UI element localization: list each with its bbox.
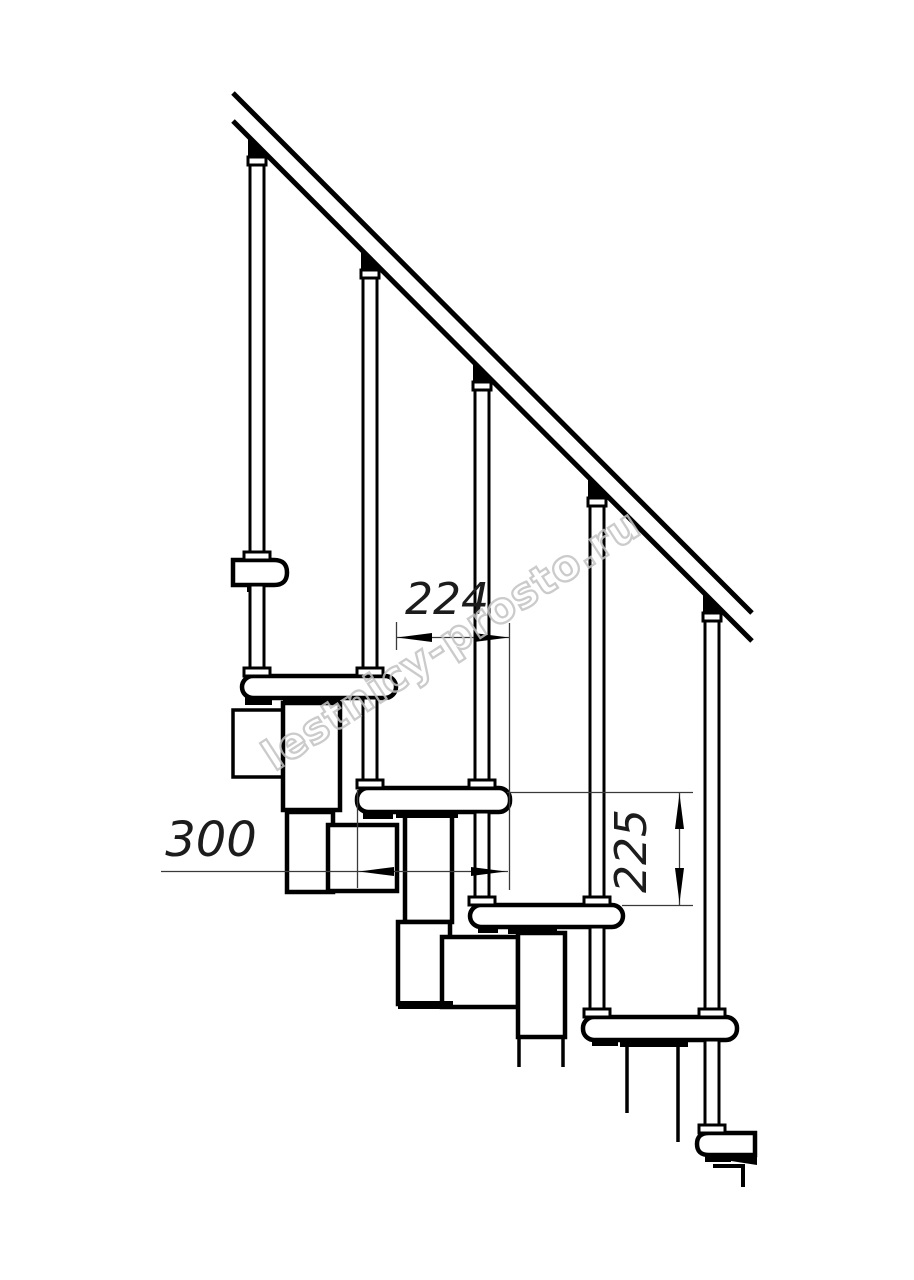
baluster-shaft — [705, 1040, 719, 1125]
tread-1 — [233, 560, 287, 585]
support-box-foot — [398, 1001, 453, 1009]
baluster-5 — [699, 594, 725, 1133]
dimension-label: 225 — [606, 809, 657, 893]
baluster-collar — [584, 897, 610, 905]
baluster-collar — [469, 897, 495, 905]
baluster-collar — [584, 1009, 610, 1017]
baluster-collar — [244, 552, 270, 560]
tread-5 — [583, 1017, 737, 1040]
support-box — [328, 825, 397, 891]
baluster-collar — [244, 668, 270, 676]
baluster-shaft — [250, 165, 264, 552]
dimension-arrow — [675, 794, 684, 829]
staircase-drawing: 224 300 225 lestnicy-prosto.ru — [0, 0, 914, 1280]
dimension-label: 300 — [165, 812, 257, 868]
dimension-arrow — [675, 868, 684, 903]
baluster-shaft — [590, 927, 604, 1009]
baluster-shaft — [475, 812, 489, 897]
baluster-collar — [469, 780, 495, 788]
handrail-bottom-edge — [233, 121, 752, 641]
baluster-collar — [357, 780, 383, 788]
support-box — [442, 937, 518, 1007]
handrail-top-edge — [233, 93, 752, 613]
baluster-shaft — [705, 621, 719, 1009]
lower-stringer-outline — [713, 1164, 743, 1187]
handrail — [233, 93, 752, 641]
baluster-shaft — [363, 278, 377, 668]
tread-4 — [470, 905, 623, 927]
tread-3 — [357, 788, 510, 812]
baluster-collar — [699, 1009, 725, 1017]
baluster-shaft — [250, 585, 264, 668]
baluster-1 — [244, 138, 270, 676]
support-box — [518, 933, 565, 1037]
staircase-drawing-canvas: 224 300 225 lestnicy-prosto.ru — [0, 0, 914, 1280]
baluster-collar — [699, 1125, 725, 1133]
tread-6 — [697, 1133, 755, 1155]
support-box — [405, 815, 452, 922]
